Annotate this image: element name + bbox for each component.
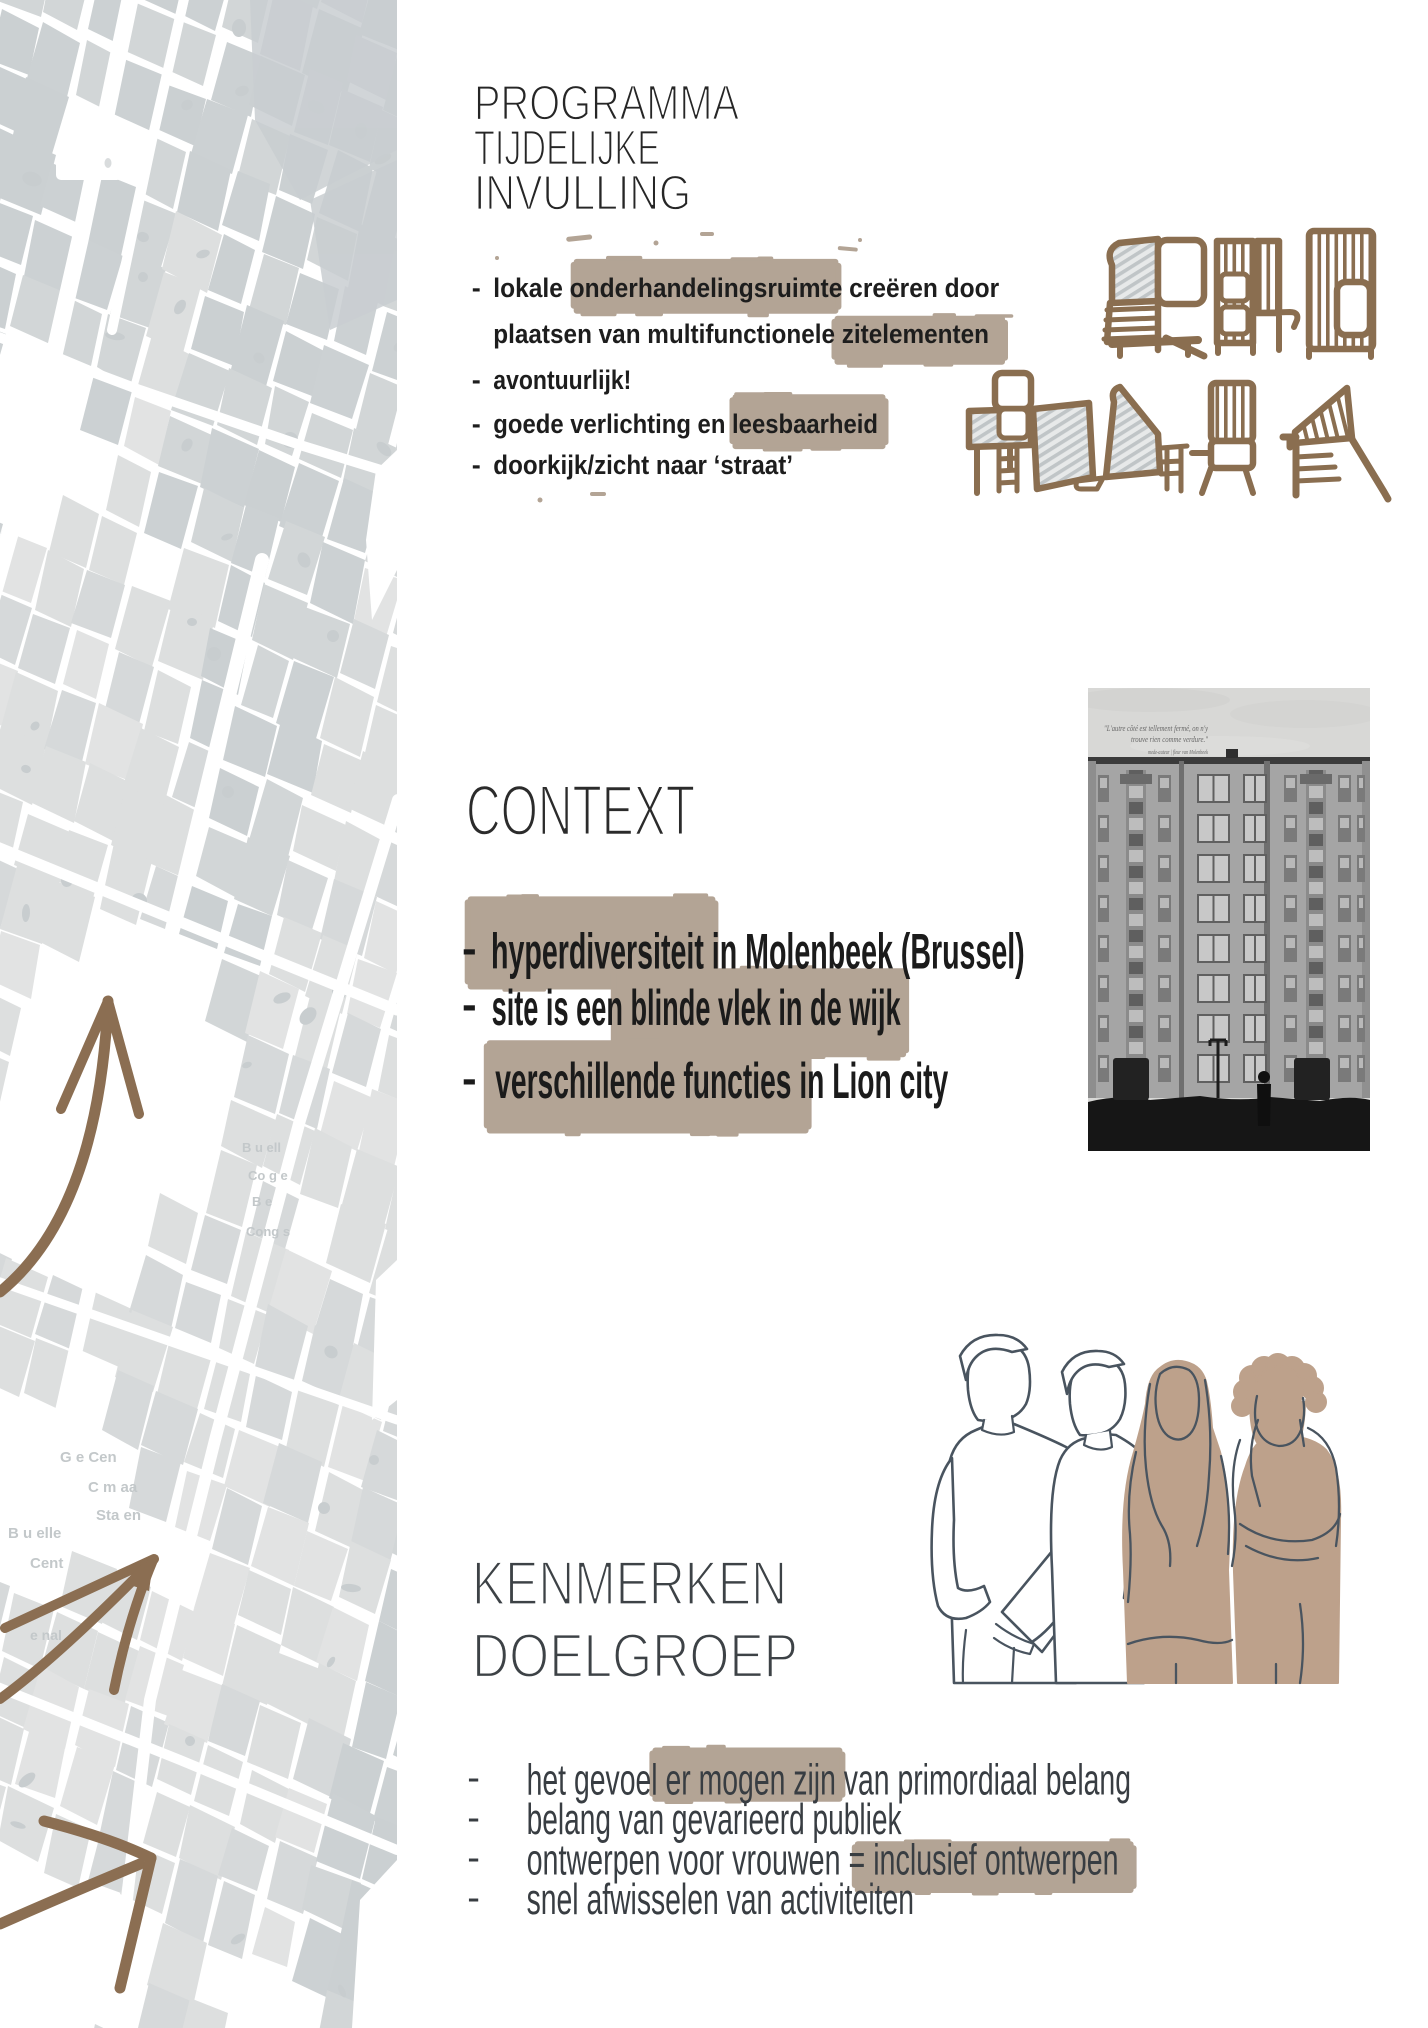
svg-text:mede-auteur | fleur van Molenb: mede-auteur | fleur van Molenbeek (1148, 749, 1208, 756)
svg-text:trouve rien comme verdure.": trouve rien comme verdure." (1131, 734, 1208, 744)
svg-text:"L'autre côté est tellement fe: "L'autre côté est tellement fermé, on n'… (1104, 723, 1208, 733)
svg-text:C m aa: C m aa (88, 1479, 138, 1496)
svg-text:lokale onderhandelingsruimte c: lokale onderhandelingsruimte creëren doo… (493, 273, 999, 303)
svg-text:Co g e: Co g e (248, 1168, 288, 1183)
svg-text:KENMERKEN: KENMERKEN (472, 1550, 787, 1619)
svg-text:INVULLING: INVULLING (474, 167, 691, 221)
svg-text:plaatsen van multifunctionele: plaatsen van multifunctionele zitelement… (493, 319, 989, 349)
svg-text:verschillende functies in Lion: verschillende functies in Lion city (495, 1053, 948, 1109)
svg-text:-: - (462, 1054, 477, 1103)
svg-text:-: - (472, 409, 481, 439)
svg-text:B u elle: B u elle (8, 1525, 61, 1542)
svg-text:G e Cen: G e Cen (60, 1449, 117, 1466)
svg-text:snel afwisselen van activiteit: snel afwisselen van activiteiten (527, 1875, 914, 1924)
svg-text:goede verlichting en leesbaarh: goede verlichting en leesbaarheid (493, 409, 878, 439)
svg-text:site is een blinde vlek in de: site is een blinde vlek in de wijk (492, 980, 901, 1036)
svg-text:-: - (467, 1877, 480, 1919)
svg-text:-: - (472, 273, 481, 303)
svg-text:avontuurlijk!: avontuurlijk! (493, 365, 631, 395)
svg-text:hyperdiversiteit in Molenbeek: hyperdiversiteit in Molenbeek (Brussel) (491, 923, 1025, 979)
svg-text:-: - (462, 980, 477, 1029)
svg-text:CONTEXT: CONTEXT (466, 772, 695, 851)
svg-text:-: - (467, 1797, 480, 1839)
svg-text:-: - (467, 1757, 480, 1799)
svg-text:B u ell: B u ell (242, 1140, 281, 1155)
svg-text:doorkijk/zicht naar ‘straat’: doorkijk/zicht naar ‘straat’ (493, 450, 793, 480)
svg-text:Sta en: Sta en (96, 1507, 141, 1524)
svg-text:e nal: e nal (30, 1627, 62, 1643)
svg-text:-: - (462, 924, 477, 973)
svg-text:B e: B e (252, 1194, 272, 1209)
svg-text:-: - (472, 365, 481, 395)
svg-text:DOELGROEP: DOELGROEP (472, 1622, 798, 1691)
svg-text:-: - (467, 1837, 480, 1879)
svg-text:Cong s: Cong s (246, 1224, 290, 1239)
svg-text:-: - (472, 450, 481, 480)
svg-text:Cent: Cent (30, 1555, 63, 1572)
